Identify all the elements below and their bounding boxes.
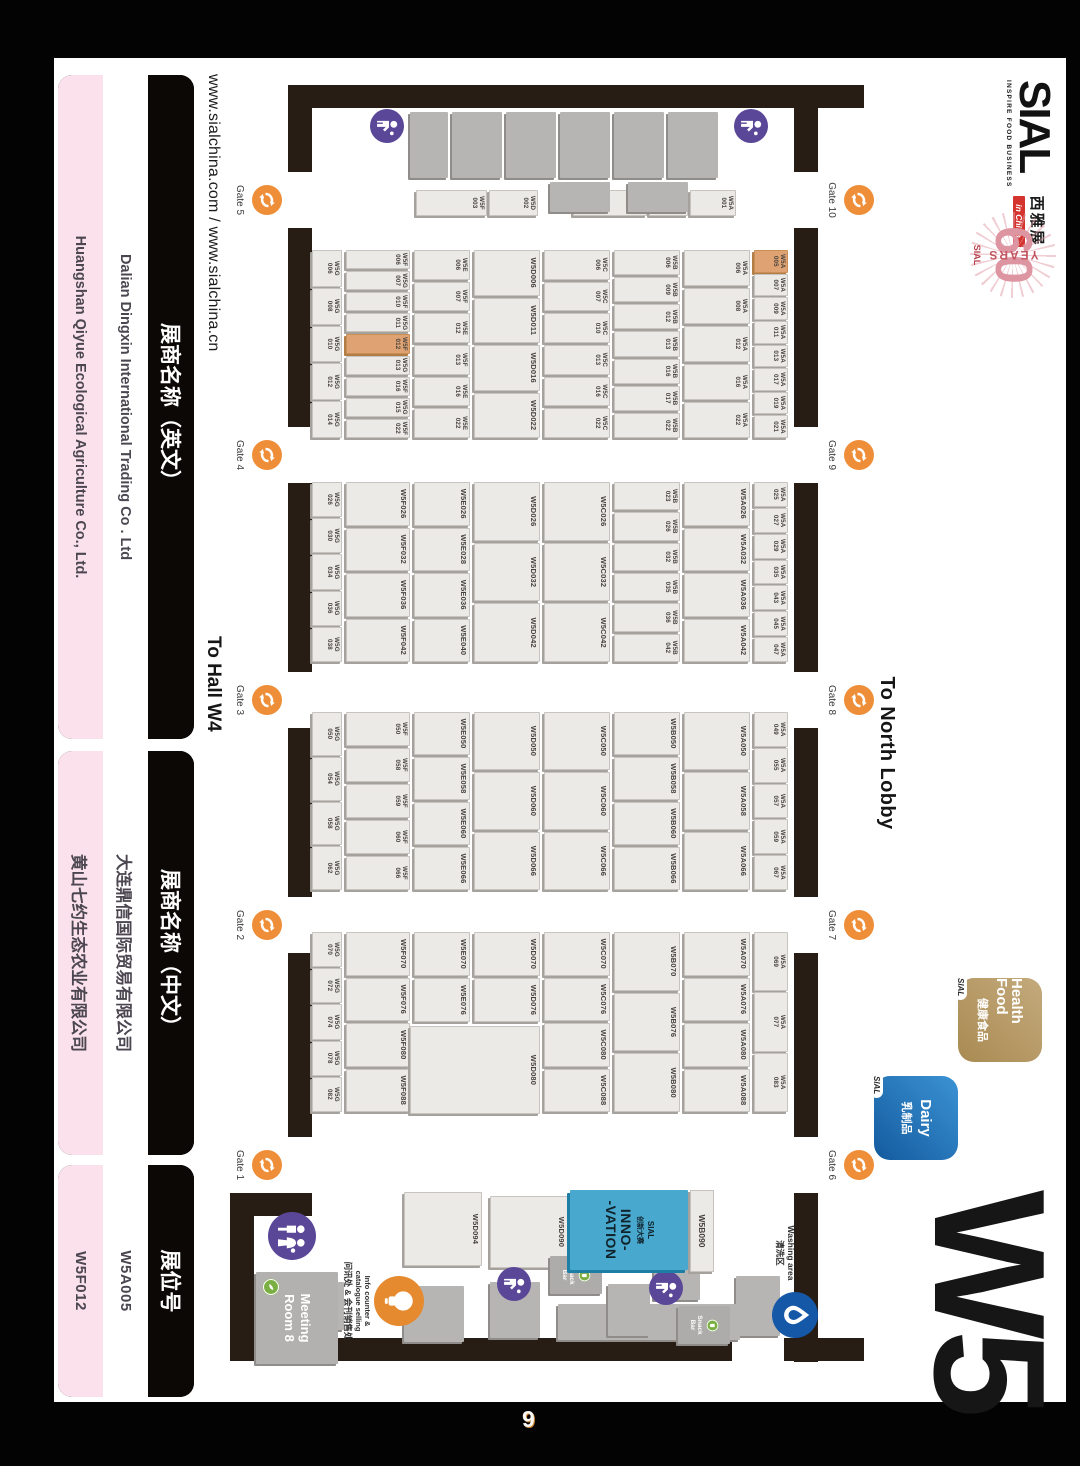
meeting-room-label: Meeting Room 8	[281, 1283, 314, 1353]
booth-W5G015: W5G015	[346, 398, 410, 417]
booth-W5G054: W5G054	[312, 757, 342, 801]
wall-segment-8	[288, 228, 312, 427]
rotated-page: SIAL INSPIRE FOOD BUSINESS 西雅展 in China …	[0, 0, 1080, 1466]
booth-W5A077: W5A077	[754, 992, 788, 1051]
booth-W5B080: W5B080	[614, 1053, 680, 1112]
booth-W5B090: W5B090	[690, 1190, 714, 1272]
booth-W5D042: W5D042	[474, 603, 540, 662]
page-number: 9	[522, 1406, 535, 1433]
booth-W5E070: W5E070	[414, 932, 470, 976]
booth-W5F036: W5F036	[346, 573, 410, 617]
row-a-seg-4: W5A070W5A076W5A080W5A088	[684, 932, 750, 1112]
innovation-line1: INNO-	[618, 1209, 633, 1251]
booth-W5G010: W5G010	[312, 326, 342, 363]
booth-W5A049: W5A049	[754, 712, 788, 747]
booth-W5C066: W5C066	[544, 832, 610, 890]
booth-W5A022: W5A022	[684, 402, 750, 438]
sial-innovation-zone: SIAL 创新大赛 INNO- -VATION	[570, 1190, 688, 1270]
booth-W5B009: W5B009	[614, 277, 680, 302]
info-counter-icon	[369, 1276, 424, 1326]
booth-W5A019: W5A019	[754, 392, 788, 415]
booth-W5E060: W5E060	[414, 802, 470, 845]
booth-W5C050: W5C050	[544, 712, 610, 770]
booth-W5F012: W5F012	[346, 334, 410, 353]
booth-W5D066: W5D066	[474, 832, 540, 890]
booth-W5B066: W5B066	[614, 847, 680, 890]
booth-W5A009: W5A009	[754, 297, 788, 320]
booth-W5D076: W5D076	[474, 978, 540, 1022]
facility-person-icon-3	[644, 1271, 683, 1305]
service-block-2	[614, 112, 664, 178]
booth-W5A045: W5A045	[754, 611, 788, 636]
meeting-room-8: Meeting Room 8	[256, 1272, 338, 1364]
row-f-seg-1: W5F006W5G007W5F010W5G011W5F012W5G013W5F0…	[346, 250, 410, 438]
gate-icon	[839, 685, 874, 715]
booth-W5D050: W5D050	[474, 712, 540, 770]
booth-W5G030: W5G030	[312, 518, 342, 553]
sial-60-years-logo: 60 YEARS SIAL	[970, 212, 1056, 298]
booth-W5E016: W5E016	[414, 377, 470, 407]
booth-W5E012: W5E012	[414, 313, 470, 343]
wall-segment-4	[794, 728, 818, 897]
booth-W5D080: W5D080	[410, 1026, 540, 1114]
innovation-cn: 创新大赛	[635, 1216, 645, 1244]
row-c-seg-4: W5C070W5C076W5C080W5C088	[544, 932, 610, 1112]
gate-icon	[247, 185, 282, 215]
gate-label: Gate 10	[826, 182, 837, 218]
booth-W5A070: W5A070	[684, 932, 750, 976]
exhibitor-en-2: Huangshan Qiyue Ecological Agriculture C…	[58, 75, 103, 739]
booth-W5D006: W5D006	[474, 250, 540, 296]
legend-title-english: 展商名称（英文）	[148, 75, 194, 739]
booth-W5F058: W5F058	[346, 748, 410, 782]
booth-W5A008: W5A008	[684, 288, 750, 324]
booth-W5B023: W5B023	[614, 482, 680, 510]
booth-W5F032: W5F032	[346, 528, 410, 572]
gate-gate-5: Gate 5	[234, 170, 282, 230]
booth-W5B036: W5B036	[614, 603, 680, 631]
gate-label: Gate 9	[826, 440, 837, 470]
booth-W5F006: W5F006	[346, 250, 410, 269]
a-strip-seg-3: W5A049W5A055W5A057W5A059W5A067	[754, 712, 788, 890]
booth-W5F026: W5F026	[346, 482, 410, 526]
row-a-seg-2: W5A026W5A032W5A036W5A042	[684, 482, 750, 662]
booth-W5G078: W5G078	[312, 1041, 342, 1076]
booth-W5C010: W5C010	[544, 313, 610, 343]
booth-W5F088: W5F088	[346, 1069, 410, 1113]
booth-W5G008: W5G008	[312, 288, 342, 325]
booth-W5C042: W5C042	[544, 603, 610, 662]
sial-logo-wordmark: SIAL	[1014, 80, 1054, 188]
innovation-brand: SIAL	[646, 1221, 655, 1239]
booth-W5E066: W5E066	[414, 847, 470, 890]
booth-W5B022: W5B022	[614, 413, 680, 438]
row-c-seg-2: W5C026W5C032W5C042	[544, 482, 610, 662]
wall-segment-10	[288, 728, 312, 897]
booth-W5A006: W5A006	[684, 250, 750, 286]
gate-label: Gate 8	[826, 685, 837, 715]
g-strip-seg-1: W5G006W5G008W5G010W5G012W5G014	[312, 250, 342, 438]
gate-gate-8: Gate 8	[826, 670, 874, 730]
booth-W5D002: W5D002	[489, 190, 538, 216]
booth-W5B070: W5B070	[614, 932, 680, 991]
to-hall-w4-label: To Hall W4	[202, 636, 224, 732]
booth-W5G038: W5G038	[312, 627, 342, 662]
booth-W5F042: W5F042	[346, 619, 410, 663]
booth-W5A050: W5A050	[684, 712, 750, 770]
hall-code: W5	[910, 1190, 1068, 1409]
g-strip-seg-3: W5G050W5G054W5G058W5G062	[312, 712, 342, 890]
row-c-seg-1: W5C006W5C007W5C010W5C013W5C016W5C022	[544, 250, 610, 438]
booth-W5B017: W5B017	[614, 386, 680, 411]
booth-W5A029: W5A029	[754, 534, 788, 559]
gate-gate-2: Gate 2	[234, 895, 282, 955]
gate-gate-6: Gate 6	[826, 1135, 874, 1195]
booth-W5G062: W5G062	[312, 846, 342, 890]
wall-segment-12	[288, 85, 864, 108]
booth-W5A036: W5A036	[684, 573, 750, 617]
booth-W5C060: W5C060	[544, 772, 610, 830]
booth-W5A025: W5A025	[754, 482, 788, 507]
booth-W5F010: W5F010	[346, 292, 410, 311]
gate-gate-7: Gate 7	[826, 895, 874, 955]
gate-gate-9: Gate 9	[826, 425, 874, 485]
booth-W5G007: W5G007	[346, 271, 410, 290]
gate-icon	[247, 685, 282, 715]
booth-W5E028: W5E028	[414, 528, 470, 572]
booth-W5B058: W5B058	[614, 757, 680, 800]
row-d-seg-1: W5D006W5D011W5D016W5D022	[474, 250, 540, 438]
row-e-seg-2: W5E026W5E028W5E036W5E040	[414, 482, 470, 662]
booth-W5A012: W5A012	[684, 326, 750, 362]
washing-area-icon	[767, 1292, 818, 1338]
badge-health-food-label: Health Food	[995, 978, 1025, 1062]
booth-W5D016: W5D016	[474, 345, 540, 391]
booth-W5B042: W5B042	[614, 634, 680, 662]
sixty-sial-label: SIAL	[972, 245, 982, 266]
badge-dairy-label: Dairy	[918, 1099, 933, 1137]
row-d-seg-4: W5D070W5D076	[474, 932, 540, 1022]
gate-label: Gate 7	[826, 910, 837, 940]
row-b-seg-2: W5B023W5B026W5B032W5B035W5B036W5B042	[614, 482, 680, 662]
booth-W5G014: W5G014	[312, 401, 342, 438]
booth-W5A083: W5A083	[754, 1053, 788, 1112]
row-b-seg-4: W5B070W5B076W5B080	[614, 932, 680, 1112]
booth-W5G006: W5G006	[312, 250, 342, 287]
legend-box-chinese: 展商名称（中文） 大连鼎信国际贸易有限公司 黄山七约生态农业有限公司	[58, 751, 194, 1155]
wall-segment-2	[794, 228, 818, 427]
row-c-seg-3: W5C050W5C060W5C066	[544, 712, 610, 890]
g-strip-seg-2: W5G026W5G030W5G034W5G036W5G038	[312, 482, 342, 662]
booth-W5G070: W5G070	[312, 932, 342, 967]
booth-W5E058: W5E058	[414, 757, 470, 800]
innovation-line2: -VATION	[603, 1201, 618, 1260]
booth-W5F080: W5F080	[346, 1023, 410, 1067]
wall-segment-5	[794, 953, 818, 1137]
booth-W5A076: W5A076	[684, 978, 750, 1022]
booth-W5A032: W5A032	[684, 528, 750, 572]
row-f-seg-4: W5F070W5F076W5F080W5F088	[346, 932, 410, 1112]
booth-W5A058: W5A058	[684, 772, 750, 830]
to-north-lobby-label: To North Lobby	[875, 600, 898, 906]
gate-label: Gate 6	[826, 1150, 837, 1180]
service-block-7	[628, 182, 688, 212]
booth-W5D011: W5D011	[474, 298, 540, 344]
booth-W5A069: W5A069	[754, 932, 788, 991]
row-a-seg-1: W5A006W5A008W5A012W5A016W5A022	[684, 250, 750, 438]
booth-W5B032: W5B032	[614, 543, 680, 571]
booth-W5F013: W5F013	[414, 345, 470, 375]
booth-W5B060: W5B060	[614, 802, 680, 845]
gate-gate-1: Gate 1	[234, 1135, 282, 1195]
legend-box-english: 展商名称（英文） Dalian Dingxin International Tr…	[58, 75, 194, 739]
booth-W5G012: W5G012	[312, 363, 342, 400]
a-strip-seg-1: W5A005W5A007W5A009W5A011W5A013W5A017W5A0…	[754, 250, 788, 438]
g-strip-seg-4: W5G070W5G072W5G074W5G078W5G082	[312, 932, 342, 1112]
snack-bar-icon	[704, 1319, 719, 1332]
snack-bar-1: SnackBar	[678, 1306, 730, 1344]
booth-W5F060: W5F060	[346, 820, 410, 854]
row-a-seg-3: W5A050W5A058W5A066	[684, 712, 750, 890]
gate-label: Gate 4	[234, 440, 245, 470]
booth-W5D094: W5D094	[404, 1192, 482, 1266]
booth-W5G074: W5G074	[312, 1004, 342, 1039]
booth-W5E050: W5E050	[414, 712, 470, 755]
badge-health-food-cn: 健康食品	[976, 998, 992, 1042]
row-f-seg-3: W5F050W5F058W5F059W5F060W5F066	[346, 712, 410, 890]
booth-W5C080: W5C080	[544, 1023, 610, 1067]
website-url: www.sialchina.com / www.sialchina.cn	[204, 74, 222, 352]
booth-W5C016: W5C016	[544, 377, 610, 407]
booth-W5G036: W5G036	[312, 591, 342, 626]
service-block-4	[506, 112, 556, 178]
facility-person-icon-2	[365, 109, 404, 143]
row-f-seg-2: W5F026W5F032W5F036W5F042	[346, 482, 410, 662]
exhibitor-cn-2: 黄山七约生态农业有限公司	[58, 751, 103, 1155]
gate-icon	[839, 910, 874, 940]
booth-W5B035: W5B035	[614, 573, 680, 601]
legend-box-booth-no: 展位号 W5A005 W5F012	[58, 1165, 194, 1397]
row-e-seg-3: W5E050W5E058W5E060W5E066	[414, 712, 470, 890]
gate-gate-10: Gate 10	[826, 170, 874, 230]
booth-W5G013: W5G013	[346, 356, 410, 375]
booth-W5F007: W5F007	[414, 282, 470, 312]
wall-segment-9	[288, 483, 312, 672]
service-block-3	[560, 112, 610, 178]
booth-W5F066: W5F066	[346, 856, 410, 890]
row-e-seg-4: W5E070W5E076	[414, 932, 470, 1022]
booth-W5F076: W5F076	[346, 978, 410, 1022]
booth-W5A007: W5A007	[754, 274, 788, 297]
booth-W5E036: W5E036	[414, 573, 470, 617]
booth-W5D070: W5D070	[474, 932, 540, 976]
gate-icon	[247, 910, 282, 940]
booth-W5B026: W5B026	[614, 512, 680, 540]
booth-W5A026: W5A026	[684, 482, 750, 526]
snack-bar-icon	[576, 1269, 591, 1282]
booth-W5B006: W5B006	[614, 250, 680, 275]
badge-dairy-brand: SIAL	[870, 1072, 883, 1098]
booth-W5B012: W5B012	[614, 304, 680, 329]
gate-icon	[839, 185, 874, 215]
gate-icon	[839, 440, 874, 470]
booth-W5G011: W5G011	[346, 313, 410, 332]
restroom-icon	[263, 1212, 316, 1260]
exhibitor-cn-1: 大连鼎信国际贸易有限公司	[103, 751, 148, 1155]
facility-person-icon-4	[492, 1267, 531, 1301]
booth-W5F070: W5F070	[346, 932, 410, 976]
sixty-years-label: YEARS	[987, 248, 1038, 262]
booth-W5D022: W5D022	[474, 393, 540, 439]
booth-W5A047: W5A047	[754, 637, 788, 662]
booth-W5A005: W5A005	[754, 250, 788, 273]
booth-W5A035: W5A035	[754, 560, 788, 585]
badge-dairy-cn: 乳制品	[899, 1102, 915, 1135]
washing-area-label: Washing area清洗区	[775, 1216, 796, 1290]
booth-W5A088: W5A088	[684, 1069, 750, 1113]
booth-W5B013: W5B013	[614, 331, 680, 356]
booth-W5G072: W5G072	[312, 968, 342, 1003]
facility-person-icon-1	[729, 109, 768, 143]
booth-no-1: W5A005	[103, 1165, 148, 1397]
booth-W5A027: W5A027	[754, 508, 788, 533]
booth-W5E006: W5E006	[414, 250, 470, 280]
badge-health-food: Health Food 健康食品 SIAL	[958, 978, 1042, 1062]
booth-W5C032: W5C032	[544, 543, 610, 602]
booth-W5A080: W5A080	[684, 1023, 750, 1067]
service-block-6	[410, 112, 448, 178]
booth-W5C022: W5C022	[544, 408, 610, 438]
row-e-seg-1: W5E006W5F007W5E012W5F013W5E016W5E022	[414, 250, 470, 438]
badge-dairy: Dairy 乳制品 SIAL	[874, 1076, 958, 1160]
a-strip-seg-4: W5A069W5A077W5A083	[754, 932, 788, 1112]
wall-segment-11	[288, 953, 312, 1137]
booth-no-2: W5F012	[58, 1165, 103, 1397]
wall-segment-3	[794, 483, 818, 672]
booth-W5G058: W5G058	[312, 802, 342, 846]
gate-gate-3: Gate 3	[234, 670, 282, 730]
exhibitor-en-1: Dalian Dingxin International Trading Co …	[103, 75, 148, 739]
a-strip-seg-2: W5A025W5A027W5A029W5A035W5A043W5A045W5A0…	[754, 482, 788, 662]
booth-W5G082: W5G082	[312, 1077, 342, 1112]
legend-title-booth-no: 展位号	[148, 1165, 194, 1397]
wall-segment-13	[784, 1338, 864, 1361]
booth-W5C013: W5C013	[544, 345, 610, 375]
service-block-8	[550, 182, 610, 212]
booth-W5C076: W5C076	[544, 978, 610, 1022]
meeting-room-icon	[262, 1278, 280, 1296]
booth-W5C070: W5C070	[544, 932, 610, 976]
booth-W5A043: W5A043	[754, 585, 788, 610]
booth-W5A017: W5A017	[754, 368, 788, 391]
gate-icon	[247, 1150, 282, 1180]
booth-W5A067: W5A067	[754, 855, 788, 890]
booth-W5A055: W5A055	[754, 748, 788, 783]
booth-W5A059: W5A059	[754, 819, 788, 854]
booth-W5F059: W5F059	[346, 784, 410, 818]
booth-W5C007: W5C007	[544, 282, 610, 312]
booth-W5F022: W5F022	[346, 419, 410, 438]
sial-logo-tagline: INSPIRE FOOD BUSINESS	[1005, 80, 1012, 188]
booth-W5C026: W5C026	[544, 482, 610, 541]
booth-W5E040: W5E040	[414, 619, 470, 663]
booth-W5F050: W5F050	[346, 712, 410, 746]
booth-W5B016: W5B016	[614, 359, 680, 384]
wall-segment-16	[230, 1216, 254, 1338]
booth-W5D026: W5D026	[474, 482, 540, 541]
booth-W5A001: W5A001	[690, 190, 736, 216]
booth-W5G026: W5G026	[312, 482, 342, 517]
row-b-seg-1: W5B006W5B009W5B012W5B013W5B016W5B017W5B0…	[614, 250, 680, 438]
snack-bar-label: SnackBar	[689, 1315, 703, 1334]
booth-W5C088: W5C088	[544, 1069, 610, 1113]
service-block-1	[668, 112, 718, 178]
row-d-seg-2: W5D026W5D032W5D042	[474, 482, 540, 662]
booth-W5F003: W5F003	[416, 190, 487, 216]
booth-W5G050: W5G050	[312, 712, 342, 756]
gate-label: Gate 3	[234, 685, 245, 715]
booth-W5A042: W5A042	[684, 619, 750, 663]
row-b-seg-3: W5B050W5B058W5B060W5B066	[614, 712, 680, 890]
booth-W5E076: W5E076	[414, 978, 470, 1022]
booth-W5D060: W5D060	[474, 772, 540, 830]
booth-W5A021: W5A021	[754, 415, 788, 438]
booth-W5A011: W5A011	[754, 321, 788, 344]
info-counter-label: Info counter &catalogue selling问讯处 & 会刊销…	[343, 1236, 372, 1366]
gate-label: Gate 2	[234, 910, 245, 940]
gate-icon	[839, 1150, 874, 1180]
booth-W5A013: W5A013	[754, 345, 788, 368]
booth-W5E026: W5E026	[414, 482, 470, 526]
booth-W5B076: W5B076	[614, 993, 680, 1052]
badge-health-food-brand: SIAL	[954, 974, 967, 1000]
booth-W5A066: W5A066	[684, 832, 750, 890]
legend-title-chinese: 展商名称（中文）	[148, 751, 194, 1155]
booth-W5C006: W5C006	[544, 250, 610, 280]
service-block-5	[452, 112, 502, 178]
booth-W5E022: W5E022	[414, 408, 470, 438]
booth-W5B050: W5B050	[614, 712, 680, 755]
booth-W5D032: W5D032	[474, 543, 540, 602]
row-d-seg-3: W5D050W5D060W5D066	[474, 712, 540, 890]
gate-label: Gate 1	[234, 1150, 245, 1180]
gate-gate-4: Gate 4	[234, 425, 282, 485]
gate-label: Gate 5	[234, 185, 245, 215]
booth-W5G034: W5G034	[312, 554, 342, 589]
booth-W5A016: W5A016	[684, 364, 750, 400]
booth-W5F016: W5F016	[346, 377, 410, 396]
gate-icon	[247, 440, 282, 470]
booth-W5A057: W5A057	[754, 784, 788, 819]
